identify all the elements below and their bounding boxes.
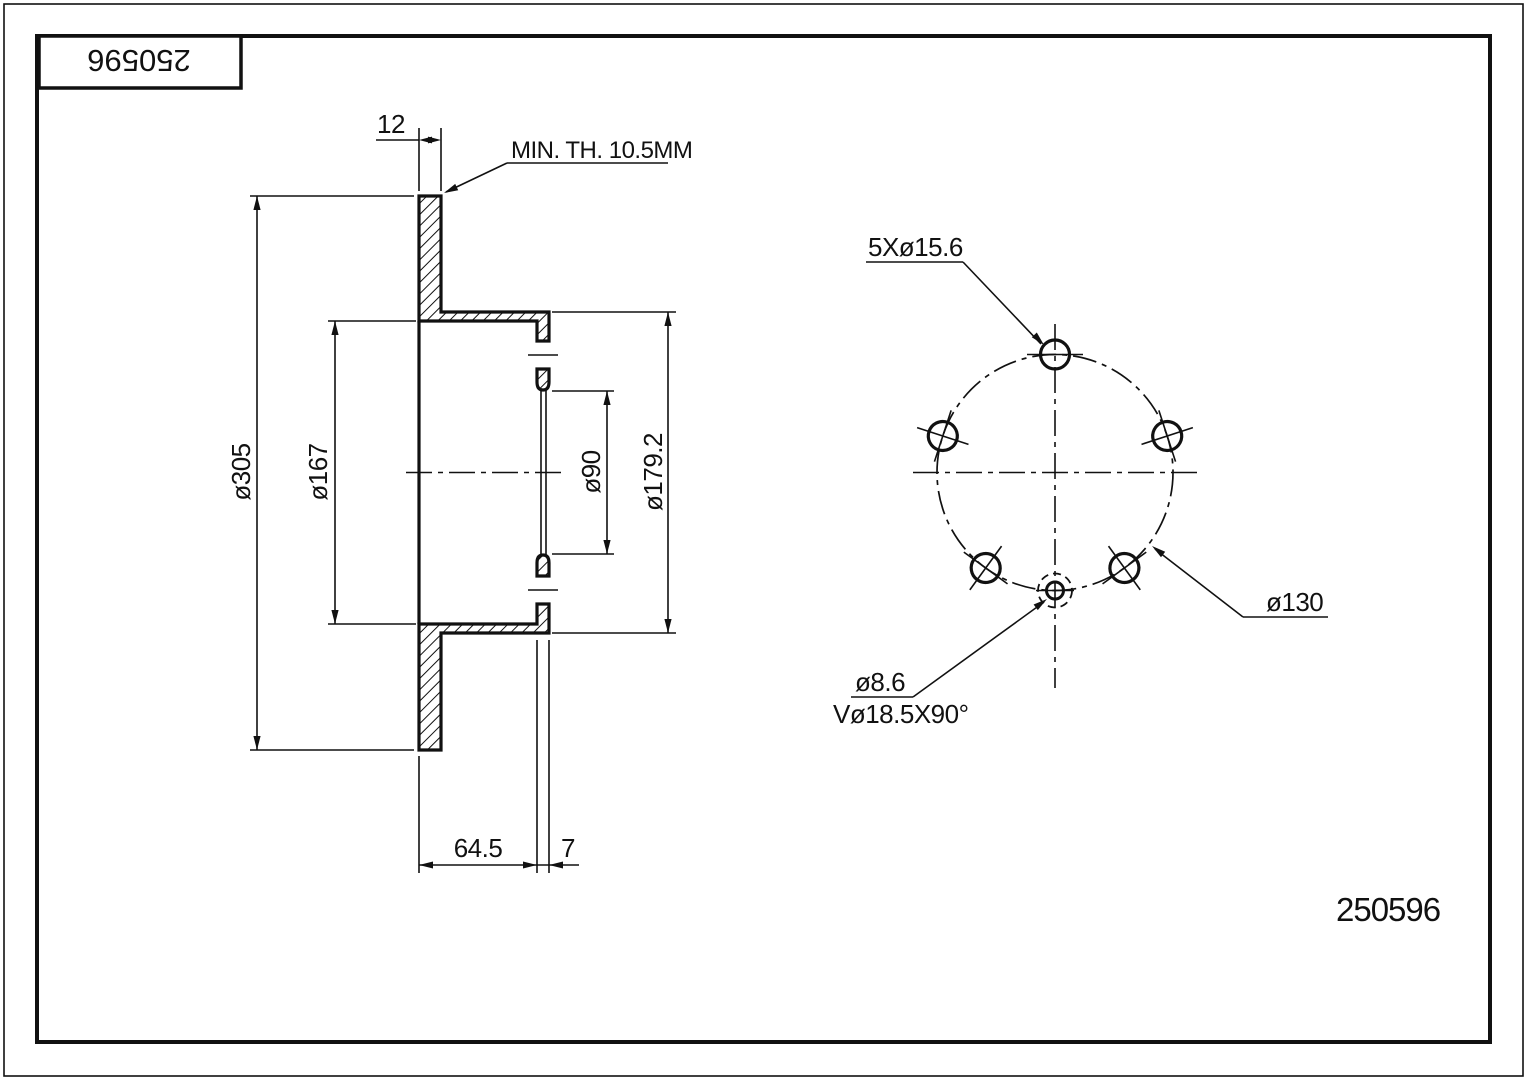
part-number-titlebox: 250596 bbox=[87, 43, 190, 78]
bolt-hole-upper-left bbox=[909, 402, 977, 470]
label-hat-inner-diameter: ø167 bbox=[303, 443, 333, 500]
label-disc-thickness: 12 bbox=[377, 109, 405, 139]
inner-border bbox=[37, 36, 1490, 1042]
drawing-sheet: 250596 250596 ø305 bbox=[0, 0, 1527, 1080]
dim-height: 64.5 7 bbox=[419, 640, 579, 873]
part-number-footer: 250596 bbox=[1336, 891, 1440, 928]
label-bolt-circle: ø130 bbox=[1266, 587, 1323, 617]
dim-hat-inner-diameter: ø167 bbox=[303, 321, 416, 624]
label-mount-face-thickness: 7 bbox=[561, 833, 575, 863]
label-overall-height: 64.5 bbox=[454, 833, 503, 863]
outer-border bbox=[4, 4, 1523, 1076]
leader-bolt-circle: ø130 bbox=[1152, 546, 1328, 617]
hub-lower-lip bbox=[537, 555, 549, 576]
hub-upper-lip bbox=[537, 369, 549, 390]
label-bolt-holes: 5Xø15.6 bbox=[868, 232, 963, 262]
min-thickness-note: MIN. TH. 10.5MM bbox=[444, 137, 692, 193]
bolt-hole-upper-right bbox=[1133, 402, 1201, 470]
leader-bolt-holes: 5Xø15.6 bbox=[866, 232, 1044, 345]
label-hat-outer-diameter: ø179.2 bbox=[638, 433, 668, 511]
label-min-thickness: MIN. TH. 10.5MM bbox=[511, 137, 692, 164]
title-box: 250596 bbox=[39, 36, 241, 88]
dim-center-bore: ø90 bbox=[552, 391, 614, 554]
disc-upper-section bbox=[419, 196, 549, 341]
disc-lower-section bbox=[419, 604, 549, 750]
front-view: 5Xø15.6 ø130 ø8.6 Vø18.5X90° bbox=[833, 232, 1328, 729]
leader-pin-hole: ø8.6 Vø18.5X90° bbox=[833, 599, 1047, 729]
section-view: ø305 ø167 ø90 ø179.2 bbox=[226, 109, 692, 873]
dim-disc-thickness: 12 bbox=[376, 109, 441, 191]
label-pin-hole: ø8.6 bbox=[855, 667, 905, 697]
dim-hat-outer-diameter: ø179.2 bbox=[552, 312, 676, 633]
technical-drawing: 250596 250596 ø305 bbox=[0, 0, 1527, 1080]
label-center-bore: ø90 bbox=[576, 450, 606, 493]
label-outer-diameter: ø305 bbox=[226, 443, 256, 500]
label-countersink: Vø18.5X90° bbox=[833, 699, 969, 729]
